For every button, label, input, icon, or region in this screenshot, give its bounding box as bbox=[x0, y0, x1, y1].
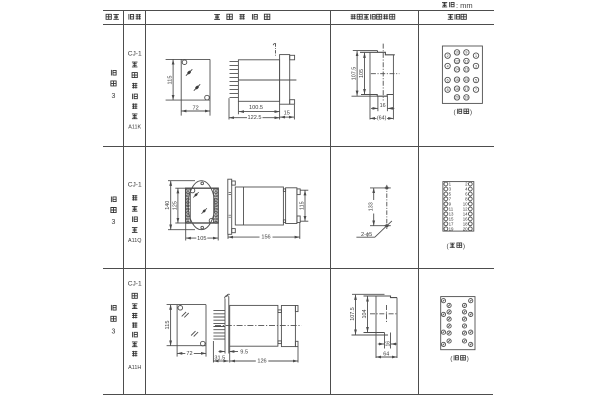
svg-text:4: 4 bbox=[447, 64, 449, 68]
svg-text:): ) bbox=[467, 356, 469, 363]
svg-text:20: 20 bbox=[463, 226, 468, 231]
svg-text:CJ-1: CJ-1 bbox=[128, 182, 142, 189]
svg-text:107.5: 107.5 bbox=[350, 307, 356, 321]
svg-text:9: 9 bbox=[465, 51, 467, 55]
svg-text:105: 105 bbox=[359, 69, 365, 78]
svg-text:2-ϕ5: 2-ϕ5 bbox=[361, 232, 372, 238]
svg-text:15: 15 bbox=[284, 110, 290, 116]
svg-text:10: 10 bbox=[455, 51, 459, 55]
svg-text:125: 125 bbox=[172, 201, 178, 210]
svg-text:115: 115 bbox=[165, 321, 171, 330]
svg-text:19: 19 bbox=[464, 96, 468, 100]
svg-text:16: 16 bbox=[455, 78, 459, 82]
svg-text:3: 3 bbox=[475, 64, 477, 68]
svg-text:6: 6 bbox=[447, 78, 449, 82]
svg-text:A11K: A11K bbox=[128, 124, 141, 130]
svg-text:18: 18 bbox=[455, 87, 459, 91]
svg-text:11: 11 bbox=[465, 59, 469, 63]
svg-text:156: 156 bbox=[261, 235, 270, 241]
svg-text:(64): (64) bbox=[377, 115, 387, 121]
svg-text:19: 19 bbox=[449, 226, 454, 231]
svg-text:104: 104 bbox=[362, 310, 368, 319]
svg-text:3: 3 bbox=[112, 93, 116, 100]
svg-text:14: 14 bbox=[455, 68, 459, 72]
svg-text:12: 12 bbox=[455, 59, 459, 63]
svg-text:16: 16 bbox=[380, 103, 386, 109]
svg-text:CJ-1: CJ-1 bbox=[128, 281, 142, 288]
svg-text:): ) bbox=[470, 109, 472, 116]
svg-text:31.5: 31.5 bbox=[214, 355, 225, 361]
svg-text:5: 5 bbox=[475, 78, 477, 82]
svg-text:64: 64 bbox=[383, 351, 389, 357]
svg-text:126: 126 bbox=[257, 359, 266, 365]
svg-text:133: 133 bbox=[369, 202, 375, 211]
svg-text:A11H: A11H bbox=[128, 365, 141, 371]
svg-text:A11Q: A11Q bbox=[128, 238, 141, 244]
svg-text:115: 115 bbox=[300, 201, 306, 210]
svg-text:CJ-1: CJ-1 bbox=[128, 50, 142, 57]
svg-text:17: 17 bbox=[464, 87, 468, 91]
svg-text:: mm: : mm bbox=[456, 1, 473, 10]
svg-text:3: 3 bbox=[112, 219, 116, 226]
svg-text:122.5: 122.5 bbox=[248, 115, 262, 121]
svg-text:115: 115 bbox=[168, 76, 174, 85]
svg-text:100.5: 100.5 bbox=[249, 105, 263, 111]
svg-text:2: 2 bbox=[447, 54, 449, 58]
svg-text:8: 8 bbox=[447, 88, 449, 92]
svg-text:72: 72 bbox=[192, 105, 198, 111]
svg-text:3: 3 bbox=[112, 328, 116, 335]
svg-text:13: 13 bbox=[464, 68, 468, 72]
svg-text:1: 1 bbox=[475, 54, 477, 58]
svg-text:7: 7 bbox=[475, 88, 477, 92]
svg-text:9.5: 9.5 bbox=[240, 350, 248, 356]
svg-text:15: 15 bbox=[464, 78, 468, 82]
svg-text:): ) bbox=[463, 243, 465, 250]
svg-text:16: 16 bbox=[386, 341, 392, 347]
svg-text:20: 20 bbox=[455, 96, 459, 100]
svg-text:107.5: 107.5 bbox=[351, 67, 357, 81]
svg-text:140: 140 bbox=[165, 201, 171, 210]
svg-text:105: 105 bbox=[197, 236, 206, 242]
svg-text:72: 72 bbox=[186, 351, 192, 357]
